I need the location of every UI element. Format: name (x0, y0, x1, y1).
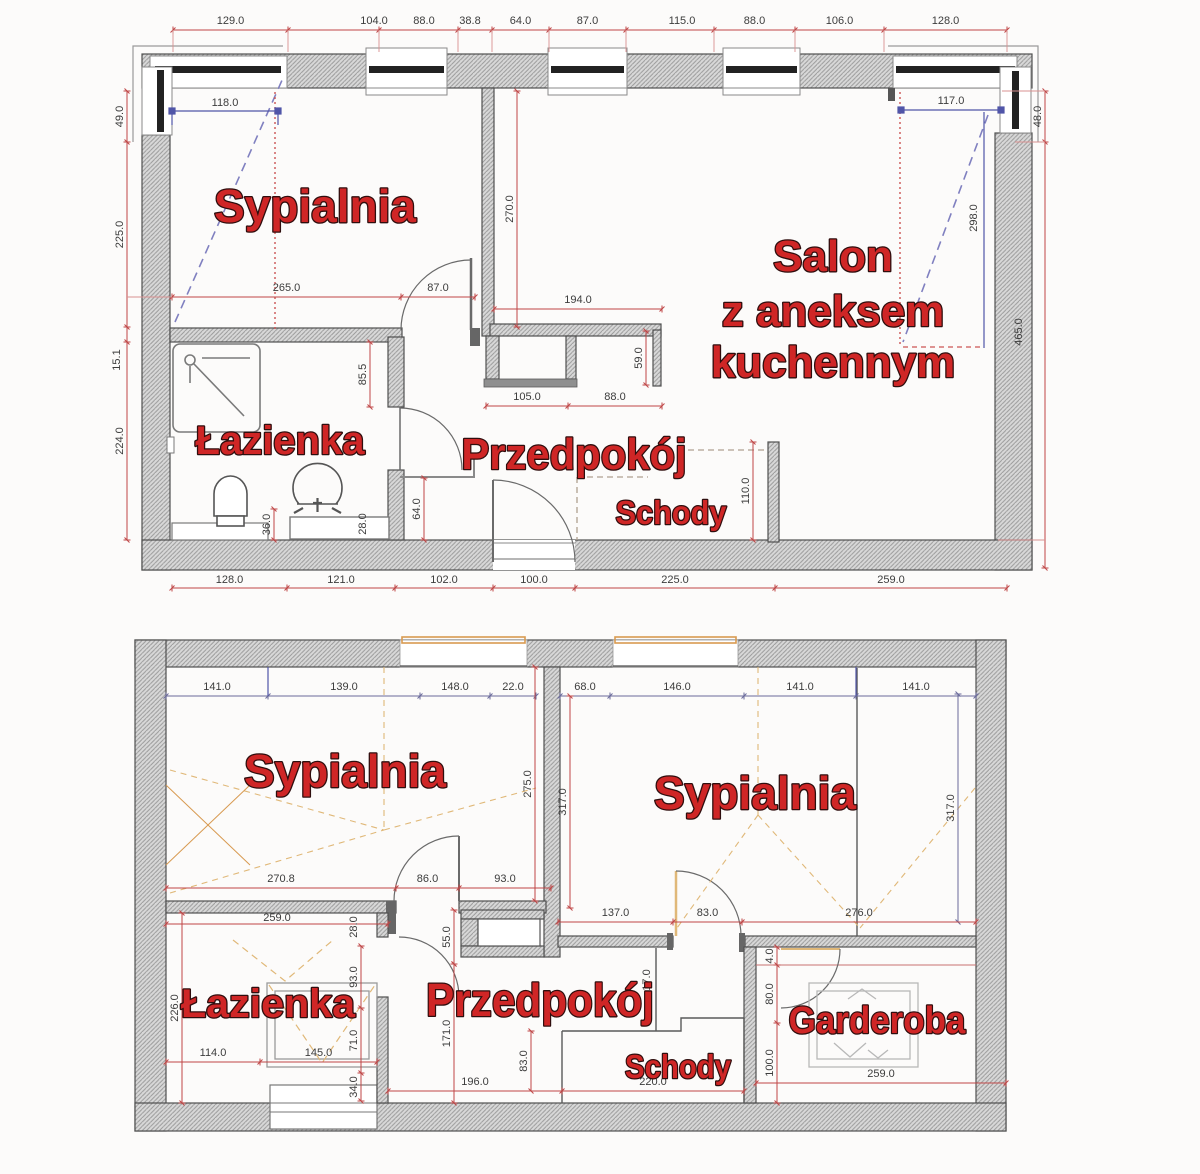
svg-text:145.0: 145.0 (305, 1047, 333, 1059)
svg-text:34.0: 34.0 (348, 1076, 360, 1097)
svg-text:88.0: 88.0 (604, 391, 625, 403)
svg-text:110.0: 110.0 (740, 478, 752, 505)
svg-text:317.0: 317.0 (945, 794, 957, 822)
svg-text:64.0: 64.0 (411, 498, 423, 519)
svg-text:102.0: 102.0 (430, 574, 458, 586)
svg-text:224.0: 224.0 (114, 427, 126, 455)
svg-text:Garderoba: Garderoba (789, 999, 966, 1042)
svg-text:36.0: 36.0 (261, 514, 273, 535)
svg-text:128.0: 128.0 (932, 15, 960, 27)
svg-text:88.0: 88.0 (744, 15, 765, 27)
svg-text:55.0: 55.0 (441, 926, 453, 947)
svg-text:128.0: 128.0 (216, 574, 244, 586)
svg-text:Schody: Schody (625, 1048, 732, 1085)
svg-text:141.0: 141.0 (203, 681, 231, 693)
svg-text:87.0: 87.0 (427, 282, 448, 294)
svg-text:146.0: 146.0 (663, 681, 691, 693)
svg-text:15.1: 15.1 (111, 349, 123, 370)
svg-text:49.0: 49.0 (114, 106, 126, 127)
svg-text:141.0: 141.0 (902, 681, 930, 693)
svg-text:259.0: 259.0 (877, 574, 905, 586)
svg-text:121.0: 121.0 (327, 574, 355, 586)
svg-text:Schody: Schody (616, 494, 727, 531)
svg-text:Przedpokój: Przedpokój (426, 975, 654, 1026)
svg-text:38.8: 38.8 (459, 15, 480, 27)
svg-text:88.0: 88.0 (413, 15, 434, 27)
svg-text:86.0: 86.0 (417, 873, 438, 885)
svg-text:Sypialnia: Sypialnia (244, 745, 446, 797)
svg-text:71.0: 71.0 (348, 1030, 360, 1051)
svg-text:59.0: 59.0 (633, 347, 645, 368)
svg-text:68.0: 68.0 (574, 681, 595, 693)
svg-text:kuchennym: kuchennym (711, 338, 956, 387)
svg-text:115.0: 115.0 (669, 15, 696, 27)
svg-text:265.0: 265.0 (273, 282, 301, 294)
svg-text:465.0: 465.0 (1013, 318, 1025, 346)
svg-text:106.0: 106.0 (826, 15, 854, 27)
svg-text:Łazienka: Łazienka (181, 981, 355, 1026)
svg-text:87.0: 87.0 (577, 15, 598, 27)
svg-text:276.0: 276.0 (845, 907, 873, 919)
svg-text:114.0: 114.0 (200, 1047, 227, 1059)
svg-text:Przedpokój: Przedpokój (461, 430, 686, 479)
svg-text:298.0: 298.0 (968, 204, 980, 232)
svg-text:129.0: 129.0 (217, 15, 245, 27)
svg-text:259.0: 259.0 (263, 912, 291, 924)
svg-text:85.5: 85.5 (357, 364, 369, 385)
svg-text:270.8: 270.8 (267, 873, 295, 885)
svg-text:93.0: 93.0 (494, 873, 515, 885)
svg-text:270.0: 270.0 (504, 195, 516, 223)
svg-text:104.0: 104.0 (360, 15, 388, 27)
svg-text:194.0: 194.0 (564, 294, 592, 306)
svg-text:48.0: 48.0 (1032, 106, 1044, 127)
svg-text:117.0: 117.0 (938, 95, 965, 107)
svg-text:259.0: 259.0 (867, 1068, 895, 1080)
svg-text:148.0: 148.0 (441, 681, 469, 693)
svg-text:Sypialnia: Sypialnia (214, 180, 416, 232)
svg-text:139.0: 139.0 (330, 681, 358, 693)
svg-text:83.0: 83.0 (697, 907, 718, 919)
svg-text:105.0: 105.0 (513, 391, 541, 403)
svg-text:141.0: 141.0 (786, 681, 814, 693)
svg-text:137.0: 137.0 (602, 907, 630, 919)
svg-text:64.0: 64.0 (510, 15, 531, 27)
svg-text:275.0: 275.0 (522, 770, 534, 798)
svg-text:100.0: 100.0 (764, 1049, 776, 1077)
svg-text:226.0: 226.0 (169, 994, 181, 1022)
svg-text:28.0: 28.0 (348, 916, 360, 937)
svg-text:225.0: 225.0 (661, 574, 689, 586)
svg-text:Łazienka: Łazienka (196, 419, 366, 463)
svg-text:196.0: 196.0 (461, 1076, 489, 1088)
svg-text:28.0: 28.0 (357, 513, 369, 534)
svg-text:225.0: 225.0 (114, 221, 126, 249)
svg-text:118.0: 118.0 (212, 97, 239, 109)
svg-text:317.0: 317.0 (557, 788, 569, 816)
svg-text:22.0: 22.0 (502, 681, 523, 693)
svg-text:Salon: Salon (773, 232, 893, 281)
svg-text:80.0: 80.0 (764, 983, 776, 1004)
svg-text:z aneksem: z aneksem (722, 287, 945, 336)
svg-text:100.0: 100.0 (520, 574, 548, 586)
svg-text:83.0: 83.0 (518, 1050, 530, 1071)
svg-text:4.0: 4.0 (764, 948, 776, 963)
svg-text:Sypialnia: Sypialnia (654, 767, 856, 819)
